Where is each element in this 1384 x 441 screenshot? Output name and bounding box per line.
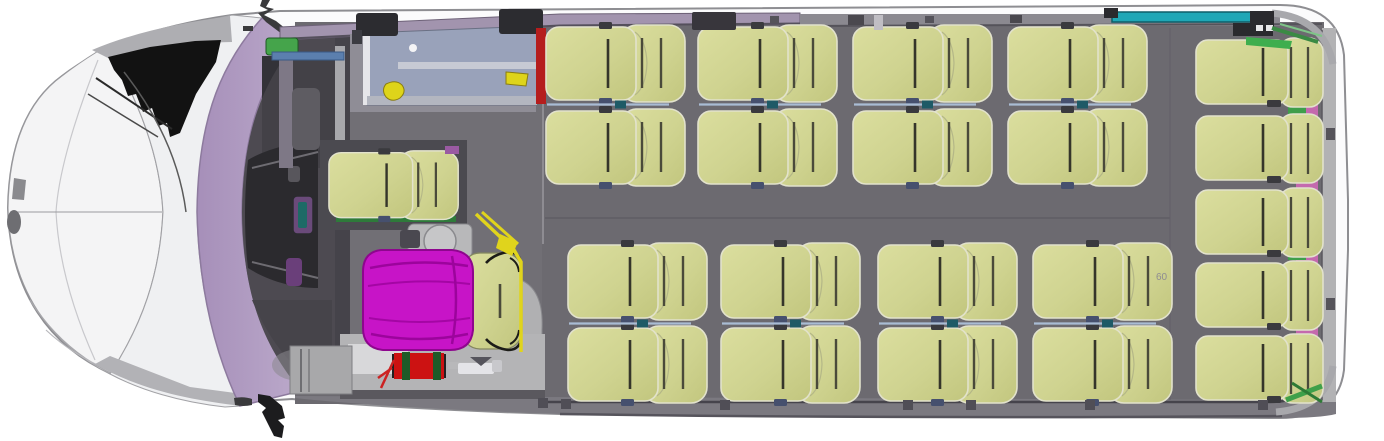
svg-text:60: 60 <box>1156 272 1168 283</box>
